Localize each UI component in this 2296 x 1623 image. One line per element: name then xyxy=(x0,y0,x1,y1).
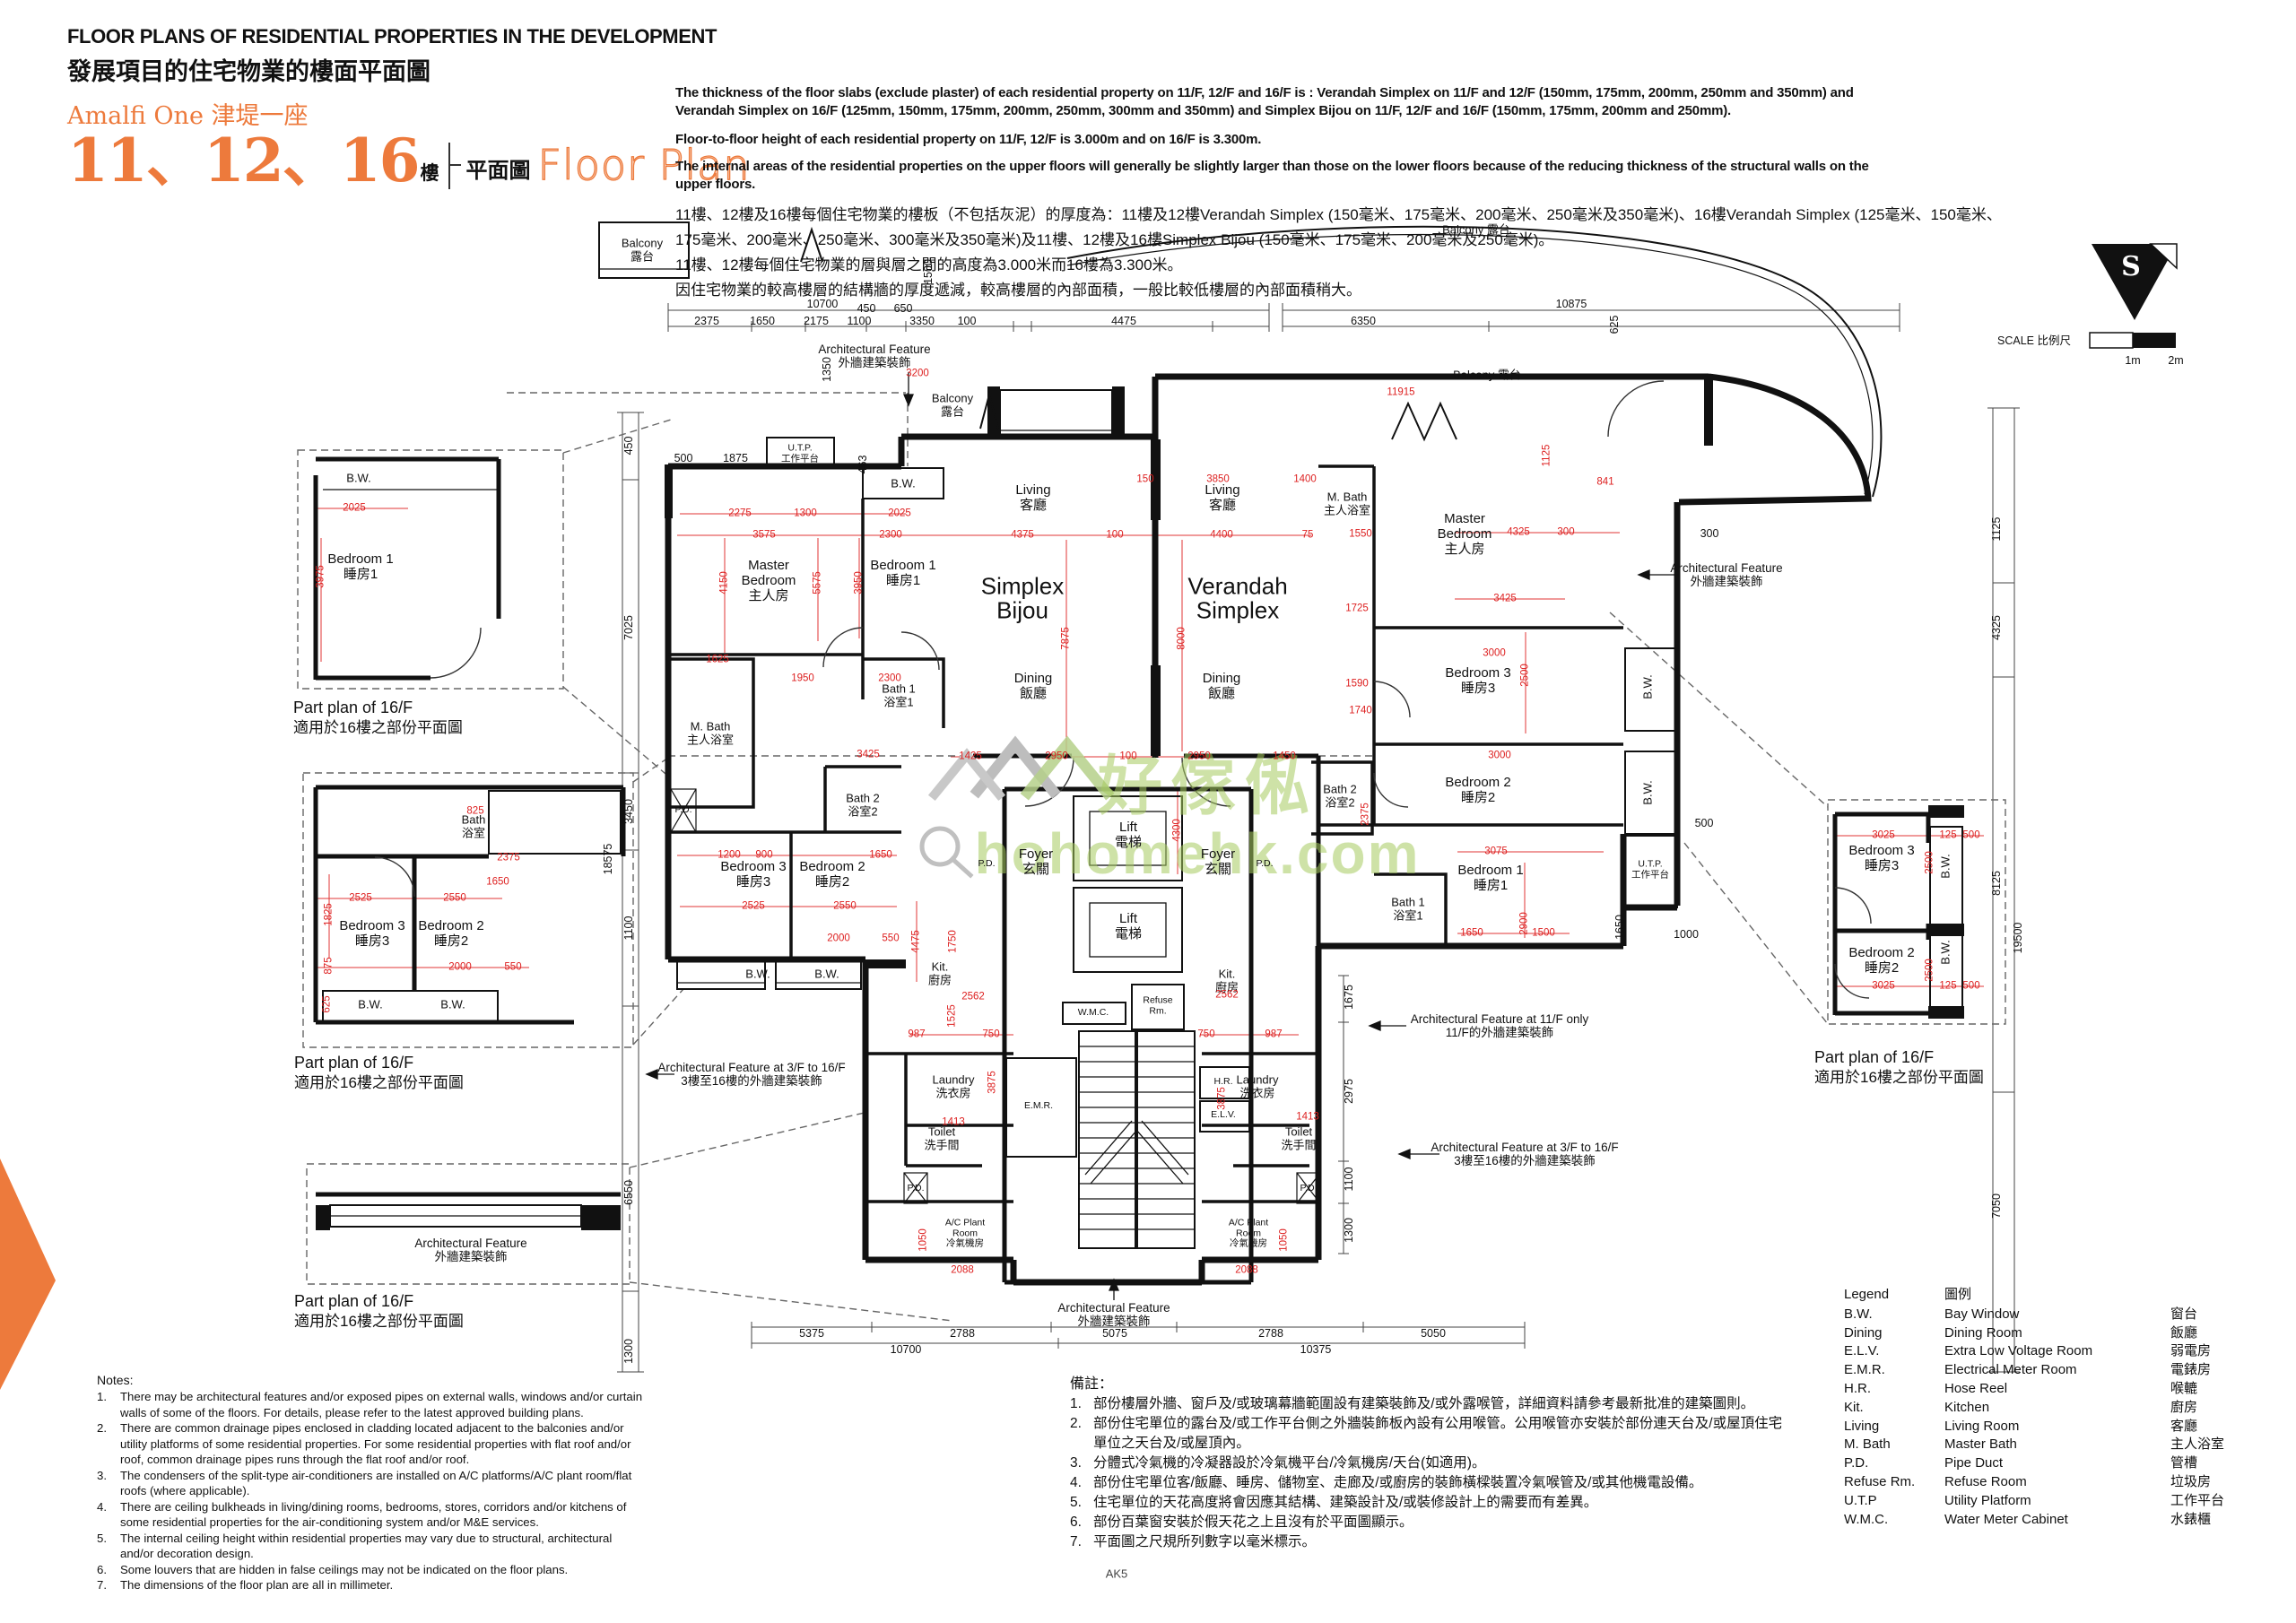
text-line: 洗手間 xyxy=(1281,1139,1316,1152)
note-item: 1.部份樓層外牆、窗戶及/或玻璃幕牆範圍設有建築裝飾及/或外露喉管，詳細資料請參… xyxy=(1070,1394,1787,1414)
legend-abbr: Refuse Rm. xyxy=(1844,1473,1944,1492)
dimension-label: 1413 xyxy=(1296,1112,1319,1124)
text-line: Architectural Feature xyxy=(1057,1301,1170,1315)
room-label: Bedroom 3睡房3 xyxy=(1848,844,1914,874)
dimension-label: 4325 xyxy=(1507,527,1530,539)
dimension-label: 300 xyxy=(1557,527,1574,539)
text-line: Dining xyxy=(1203,672,1241,687)
dimension-label: 1m xyxy=(2125,354,2140,367)
text-line: Bijou xyxy=(981,599,1064,623)
note-text: Some louvers that are hidden in false ce… xyxy=(120,1562,648,1578)
dimension-label: 987 xyxy=(908,1029,925,1041)
text-line: U.T.P. xyxy=(1631,859,1669,870)
text-line: Living xyxy=(1205,483,1239,499)
dimension-label: 3975 xyxy=(316,565,327,588)
room-label: Bath 2浴室2 xyxy=(846,792,880,818)
room-label: Bedroom 1睡房1 xyxy=(1457,864,1523,894)
room-label: RefuseRm. xyxy=(1143,995,1172,1016)
feature-note: Architectural Feature外牆建築裝飾 xyxy=(1670,561,1782,588)
text-line: M. Bath xyxy=(1324,490,1370,504)
legend-name-zh: 主人浴室 xyxy=(2170,1436,2224,1454)
dimension-label: 7875 xyxy=(1061,627,1073,650)
dimension-label: 4475 xyxy=(1111,315,1136,327)
dimension-label: 1300 xyxy=(794,508,817,520)
text-line: Bedroom 3 xyxy=(720,860,786,875)
text-line: 洗手間 xyxy=(924,1139,959,1152)
notes-zh-list: 1.部份樓層外牆、窗戶及/或玻璃幕牆範圍設有建築裝飾及/或外露喉管，詳細資料請參… xyxy=(1070,1394,1787,1552)
text-line: U.T.P. xyxy=(781,443,819,454)
text-line: 外牆建築裝飾 xyxy=(1057,1315,1170,1328)
text-line: Part plan of 16/F xyxy=(294,1292,464,1310)
text-line: 3樓至16樓的外牆建築裝飾 xyxy=(657,1074,845,1088)
room-label: B.W. xyxy=(745,968,770,982)
page-number: AK5 xyxy=(1106,1568,1128,1582)
dimension-label: 5575 xyxy=(813,571,824,595)
dimension-label: 10700 xyxy=(891,1343,922,1356)
text-line: Architectural Feature xyxy=(1670,561,1782,575)
text-line: upper floors. xyxy=(675,176,2002,194)
room-label: Bedroom 2睡房2 xyxy=(799,860,865,890)
text-line: Lift xyxy=(1115,820,1142,836)
room-label: E.L.V. xyxy=(1211,1110,1236,1121)
room-label: B.W. xyxy=(1940,854,1953,878)
legend-item: DiningDining Room飯廳 xyxy=(1844,1324,2224,1343)
dimension-label: 4150 xyxy=(719,571,731,595)
feature-note: Architectural Feature外牆建築裝飾 xyxy=(414,1237,526,1263)
legend-name-en: Electrical Meter Room xyxy=(1944,1361,2170,1380)
dimension-label: 1825 xyxy=(324,903,335,926)
text-line: The internal areas of the residential pr… xyxy=(675,158,2002,176)
note-item: 3.分體式冷氣機的冷凝器設於冷氣機平台/冷氣機房/天台(如適用)。 xyxy=(1070,1454,1787,1473)
legend-header: Legend 圖例 xyxy=(1844,1286,2224,1305)
room-label: Bath浴室 xyxy=(462,813,486,839)
legend-abbr: Dining xyxy=(1844,1324,1944,1343)
text-line: Toilet xyxy=(1281,1125,1316,1139)
dimension-label: 2550 xyxy=(833,901,857,913)
dimension-label: 100 xyxy=(1119,751,1136,763)
feature-note: Architectural Feature at 11/F only11/F的外… xyxy=(1411,1012,1589,1039)
text-line: 3樓至16樓的外牆建築裝飾 xyxy=(1431,1154,1618,1167)
floor-plan-page: 好傢俬 hohomehk.com FLOOR PLANS OF RESIDENT… xyxy=(0,0,2296,1623)
dimension-label: 841 xyxy=(1596,477,1613,489)
dimension-label: 4375 xyxy=(1011,530,1034,542)
text-line: Refuse xyxy=(1143,995,1172,1006)
dimension-label: 2088 xyxy=(1235,1265,1258,1277)
dimension-label: 2m xyxy=(2168,354,2183,367)
dimension-label: 1725 xyxy=(1345,603,1369,615)
dimension-label: 2000 xyxy=(448,962,472,974)
dimension-label: 1650 xyxy=(869,850,892,862)
room-label: Bath 1浴室1 xyxy=(882,682,916,708)
dimension-label: 3025 xyxy=(1872,830,1895,842)
dimension-label: 3850 xyxy=(1206,474,1230,486)
room-label: Dining飯廳 xyxy=(1014,672,1053,702)
dimension-label: 2025 xyxy=(343,503,366,515)
dimension-label: 3000 xyxy=(1488,751,1511,762)
room-label: Foyer玄關 xyxy=(1201,847,1235,878)
room-label: U.T.P.工作平台 xyxy=(1631,859,1669,880)
text-line: Master xyxy=(742,559,796,574)
unit-name: VerandahSimplex xyxy=(1187,575,1287,624)
dimension-label: 500 xyxy=(674,452,693,464)
text-line: Architectural Feature at 3/F to 16/F xyxy=(657,1061,845,1074)
legend-name-en: Dining Room xyxy=(1944,1324,2170,1343)
text-line: Laundry xyxy=(933,1073,975,1087)
room-label: U.T.P.工作平台 xyxy=(781,443,819,464)
legend-name-zh: 水錶櫃 xyxy=(2170,1511,2224,1530)
text-line: 浴室 xyxy=(462,827,486,840)
text-line: Foyer xyxy=(1019,847,1053,863)
legend-name-en: Hose Reel xyxy=(1944,1380,2170,1399)
dimension-label: 4400 xyxy=(1210,530,1233,542)
room-label: Bedroom 3睡房3 xyxy=(339,919,404,950)
dimension-label: 19500 xyxy=(2012,923,2024,954)
text-line: 浴室1 xyxy=(882,696,916,709)
room-label: Bedroom 1睡房1 xyxy=(327,552,393,583)
note-item: 6.Some louvers that are hidden in false … xyxy=(97,1562,648,1578)
text-line: 適用於16樓之部份平面圖 xyxy=(294,1313,464,1330)
dimension-label: 10700 xyxy=(807,298,839,310)
scale-bar xyxy=(2090,333,2176,348)
legend-name-en: Living Room xyxy=(1944,1418,2170,1436)
note-item: 4.There are ceiling bulkheads in living/… xyxy=(97,1499,648,1531)
text-line: 主人房 xyxy=(1438,542,1492,557)
room-label: Laundry洗衣房 xyxy=(933,1073,975,1099)
room-label: Kit.廚房 xyxy=(928,960,952,986)
dimension-label: 1875 xyxy=(723,452,748,464)
dimension-label: 10875 xyxy=(1556,298,1587,310)
dimension-label: 4475 xyxy=(911,930,923,953)
note-text: The dimensions of the floor plan are all… xyxy=(120,1577,648,1593)
dashed-boundaries xyxy=(298,393,2005,1321)
note-item: 5.The internal ceiling height within res… xyxy=(97,1531,648,1562)
dimension-label: 1675 xyxy=(1343,985,1355,1010)
note-text: 部份百葉窗安裝於假天花之上且沒有於平面圖顯示。 xyxy=(1093,1513,1787,1532)
note-item: 7.平面圖之尺規所列數字以毫米標示。 xyxy=(1070,1532,1787,1552)
dimension-label: 1100 xyxy=(622,916,635,941)
dimension-label: 2088 xyxy=(951,1265,974,1277)
text-line: Bedroom 3 xyxy=(1848,844,1914,859)
room-label: Bedroom 2睡房2 xyxy=(1848,946,1914,976)
note-text: 部份樓層外牆、窗戶及/或玻璃幕牆範圍設有建築裝飾及/或外露喉管，詳細資料請參考最… xyxy=(1093,1394,1787,1414)
dimension-label: 500 xyxy=(1962,981,1979,993)
note-text: 平面圖之尺規所列數字以毫米標示。 xyxy=(1093,1532,1787,1552)
dimension-label: 750 xyxy=(1197,1029,1214,1041)
text-line: Part plan of 16/F xyxy=(1814,1048,1984,1066)
text-line: 冷氣機房 xyxy=(945,1239,985,1250)
legend-item: M. BathMaster Bath主人浴室 xyxy=(1844,1436,2224,1454)
dimension-label: 1050 xyxy=(1279,1228,1291,1252)
room-label: B.W. xyxy=(814,968,839,982)
note-number: 6. xyxy=(97,1562,120,1578)
dimension-label: 2500 xyxy=(1925,851,1936,874)
text-line: 客廳 xyxy=(1205,499,1239,514)
room-label: Balcony露台 xyxy=(622,237,663,263)
legend-name-zh: 客廳 xyxy=(2170,1418,2224,1436)
text-line: 工作平台 xyxy=(1631,870,1669,881)
text-line: Verandah xyxy=(1187,575,1287,599)
dimension-label: 125 xyxy=(1939,981,1956,993)
dimension-label: 3950 xyxy=(854,571,865,595)
legend-name-en: Kitchen xyxy=(1944,1399,2170,1418)
legend-name-en: Utility Platform xyxy=(1944,1492,2170,1511)
note-number: 2. xyxy=(97,1420,120,1468)
text-line: Bedroom 2 xyxy=(1848,946,1914,961)
dimension-label: 2375 xyxy=(694,315,719,327)
dimension-label: 3425 xyxy=(857,750,880,761)
floor-suffix: 樓 xyxy=(421,159,439,186)
dimension-label: 1590 xyxy=(1345,679,1369,690)
text-line: Architectural Feature at 3/F to 16/F xyxy=(1431,1141,1618,1154)
walls xyxy=(316,222,1962,1282)
description-zh: 11樓、12樓及16樓每個住宅物業的樓板（不包括灰泥）的厚度為：11樓及12樓V… xyxy=(675,203,2002,303)
room-label: Bath 1浴室1 xyxy=(1391,896,1425,922)
dimension-label: 500 xyxy=(1695,817,1714,829)
dimension-label: 1500 xyxy=(1532,928,1555,940)
room-label: Laundry洗衣房 xyxy=(1237,1073,1279,1099)
note-number: 7. xyxy=(97,1577,120,1593)
dimension-label: 1950 xyxy=(791,673,814,685)
dimension-label: 8000 xyxy=(1177,627,1188,650)
note-text: The condensers of the split-type air-con… xyxy=(120,1468,648,1499)
note-text: 分體式冷氣機的冷凝器設於冷氣機平台/冷氣機房/天台(如適用)。 xyxy=(1093,1454,1787,1473)
legend-name-en: Extra Low Voltage Room xyxy=(1944,1342,2170,1361)
legend-abbr: U.T.P xyxy=(1844,1492,1944,1511)
room-label: MasterBedroom主人房 xyxy=(742,559,796,603)
dimension-label: 2300 xyxy=(878,673,901,685)
text-line: 睡房3 xyxy=(720,875,786,890)
text-line: Bedroom 1 xyxy=(1457,864,1523,879)
room-label: Foyer玄關 xyxy=(1019,847,1053,878)
text-line: 客廳 xyxy=(1015,499,1050,514)
dimension-label: 2525 xyxy=(742,901,765,913)
text-line: Foyer xyxy=(1201,847,1235,863)
note-text: There may be architectural features and/… xyxy=(120,1389,648,1420)
dimension-label: 2950 xyxy=(1045,751,1068,763)
dimension-label: 450 xyxy=(857,302,876,315)
room-label: Balcony 露台 xyxy=(1442,224,1510,238)
floor-designation: 11、12、16 樓 平面圖 Floor Plan xyxy=(67,133,750,189)
legend-name-zh: 管槽 xyxy=(2170,1454,2224,1473)
dimension-label: 4300 xyxy=(1172,819,1184,842)
text-line: 175毫米、200毫米、250毫米、300毫米及350毫米)及11樓、12樓及1… xyxy=(675,228,2002,253)
dimension-label: 5375 xyxy=(799,1327,824,1340)
legend-abbr: H.R. xyxy=(1844,1380,1944,1399)
watermark-house-icon xyxy=(922,744,1107,875)
dimension-label: 2562 xyxy=(961,992,985,1003)
dimension-label: 1050 xyxy=(918,1228,930,1252)
legend-name-en: Bay Window xyxy=(1944,1306,2170,1324)
text-line: Balcony xyxy=(622,237,663,250)
room-label: Bedroom 3睡房3 xyxy=(720,860,786,890)
room-label: P.D. xyxy=(674,805,691,816)
dimension-label: 1650 xyxy=(1460,928,1483,940)
text-line: 電梯 xyxy=(1115,927,1142,942)
room-label: Bedroom 2睡房2 xyxy=(418,919,483,950)
dimension-label: 1650 xyxy=(1613,915,1626,940)
dimension-label: 100 xyxy=(1106,530,1123,542)
dimension-label: 1200 xyxy=(717,850,741,862)
dimension-label: 3875 xyxy=(1217,1087,1229,1110)
text-line: 洗衣房 xyxy=(933,1087,975,1100)
dimension-label: 5075 xyxy=(1102,1327,1127,1340)
unit-name: SimplexBijou xyxy=(981,575,1064,624)
notes-list: 1.There may be architectural features an… xyxy=(97,1389,648,1593)
legend-item: LivingLiving Room客廳 xyxy=(1844,1418,2224,1436)
legend-item: B.W.Bay Window窗台 xyxy=(1844,1306,2224,1324)
notes-title: Notes: xyxy=(97,1373,648,1387)
dimension-label: 7050 xyxy=(1990,1193,2003,1219)
legend-title-zh: 圖例 xyxy=(1944,1286,2170,1305)
dimension-label: 3000 xyxy=(1483,648,1506,660)
text-line: Bedroom xyxy=(742,574,796,589)
legend-name-zh: 電錶房 xyxy=(2170,1361,2224,1380)
note-item: 2.There are common drainage pipes enclos… xyxy=(97,1420,648,1468)
legend-name-en: Pipe Duct xyxy=(1944,1454,2170,1473)
legend-abbr: W.M.C. xyxy=(1844,1511,1944,1530)
text-line: Rm. xyxy=(1143,1006,1172,1017)
dimension-label: 2275 xyxy=(728,508,752,520)
dimension-label: 1125 xyxy=(1542,445,1553,467)
feature-note: Architectural Feature at 3/F to 16/F3樓至1… xyxy=(1431,1141,1618,1167)
note-item: 1.There may be architectural features an… xyxy=(97,1389,648,1420)
dimension-label: 1500 xyxy=(922,259,935,284)
text-line: Floor-to-floor height of each residentia… xyxy=(675,131,2002,149)
text-line: 冷氣機房 xyxy=(1229,1239,1268,1250)
dimension-label: SCALE 比例尺 xyxy=(1997,334,2071,347)
legend-name-zh: 弱電房 xyxy=(2170,1342,2224,1361)
legend-abbr: M. Bath xyxy=(1844,1436,1944,1454)
text-line: 因住宅物業的較高樓層的結構牆的厚度遞減，較高樓層的內部面積，一般比較低樓層的內部… xyxy=(675,278,2002,303)
dimension-label: 450 xyxy=(622,437,635,456)
room-label: E.M.R. xyxy=(1024,1101,1053,1112)
room-label: H.R. xyxy=(1214,1077,1233,1088)
dimension-label: 3025 xyxy=(1872,981,1895,993)
dimension-label: 463 xyxy=(857,456,869,474)
dimension-label: 18575 xyxy=(602,844,614,875)
text-line: Architectural Feature xyxy=(414,1237,526,1250)
description-block: The thickness of the floor slabs (exclud… xyxy=(675,84,2002,303)
text-line: Lift xyxy=(1115,912,1142,927)
dimension-label: 3575 xyxy=(752,530,776,542)
text-line: 睡房1 xyxy=(870,574,935,589)
text-line: Part plan of 16/F xyxy=(293,699,463,716)
notes: Notes: 1.There may be architectural feat… xyxy=(97,1373,648,1593)
legend-title-en: Legend xyxy=(1844,1286,1944,1305)
text-line: Dining xyxy=(1014,672,1053,687)
dimension-label: 500 xyxy=(1962,830,1979,842)
text-line: Bedroom 1 xyxy=(327,552,393,568)
legend-name-zh: 垃圾房 xyxy=(2170,1473,2224,1492)
dimension-label: 875 xyxy=(324,957,335,974)
dimension-label: 1300 xyxy=(1343,1218,1355,1243)
dimension-label: 11915 xyxy=(1387,387,1414,399)
text-line: 適用於16樓之部份平面圖 xyxy=(1814,1069,1984,1086)
dimension-label: 1650 xyxy=(486,877,509,889)
dimension-label: 2000 xyxy=(827,933,850,945)
text-line: Balcony xyxy=(932,392,973,405)
notes-zh-title: 備註： xyxy=(1070,1371,1787,1393)
part-plan-title: Part plan of 16/F適用於16樓之部份平面圖 xyxy=(293,699,463,736)
note-text: 住宅單位的天花高度將會因應其結構、建築設計及/或裝修設計上的需要而有差異。 xyxy=(1093,1493,1787,1513)
dimension-label: 2562 xyxy=(1215,990,1239,1002)
dimension-label: 2788 xyxy=(950,1327,975,1340)
room-label: P.D. xyxy=(1256,859,1273,870)
dimension-label: 1400 xyxy=(1293,474,1317,486)
room-label: M. Bath主人浴室 xyxy=(1324,490,1370,516)
legend-abbr: P.D. xyxy=(1844,1454,1944,1473)
legend-name-zh: 工作平台 xyxy=(2170,1492,2224,1511)
text-line: The thickness of the floor slabs (exclud… xyxy=(675,84,2002,102)
text-line: 主人房 xyxy=(742,588,796,603)
notes-zh: 備註： 1.部份樓層外牆、窗戶及/或玻璃幕牆範圍設有建築裝飾及/或外露喉管，詳細… xyxy=(1070,1371,1787,1552)
text-line: 工作平台 xyxy=(781,454,819,464)
text-line: 玄關 xyxy=(1019,863,1053,878)
room-label: MasterBedroom主人房 xyxy=(1438,512,1492,557)
room-label: M. Bath主人浴室 xyxy=(687,720,734,746)
legend-name-zh: 飯廳 xyxy=(2170,1324,2224,1343)
dimension-label: 1740 xyxy=(1349,706,1372,717)
legend-abbr: Living xyxy=(1844,1418,1944,1436)
note-number: 5. xyxy=(1070,1493,1093,1513)
dimension-label: 6550 xyxy=(622,1180,635,1205)
dimension-label: 3200 xyxy=(906,369,929,380)
room-label: Living客廳 xyxy=(1015,483,1050,514)
note-text: The internal ceiling height within resid… xyxy=(120,1531,648,1562)
text-line: 飯廳 xyxy=(1203,687,1241,702)
legend: Legend 圖例 B.W.Bay Window窗台DiningDining R… xyxy=(1844,1286,2224,1529)
text-line: Laundry xyxy=(1237,1073,1279,1087)
room-label: Bedroom 2睡房2 xyxy=(1445,776,1510,806)
page-title: FLOOR PLANS OF RESIDENTIAL PROPERTIES IN… xyxy=(67,25,750,48)
dimension-label: 650 xyxy=(894,302,913,315)
dimension-label: 1300 xyxy=(622,1339,635,1364)
room-label: B.W. xyxy=(346,473,370,486)
dimension-label: 2975 xyxy=(1343,1079,1355,1104)
dimension-label: 1125 xyxy=(1990,517,2003,542)
feature-note: Architectural Feature外牆建築裝飾 xyxy=(1057,1301,1170,1328)
text-line: 適用於16樓之部份平面圖 xyxy=(293,719,463,736)
dimension-label: 10375 xyxy=(1300,1343,1332,1356)
note-number: 4. xyxy=(97,1499,120,1531)
text-line: Bath 2 xyxy=(1323,783,1357,796)
header: FLOOR PLANS OF RESIDENTIAL PROPERTIES IN… xyxy=(67,25,750,189)
text-line: Part plan of 16/F xyxy=(294,1054,464,1072)
text-line: Architectural Feature xyxy=(818,343,930,356)
orange-corner-accent xyxy=(0,1159,56,1390)
note-text: 部份住宅單位的露台及/或工作平台側之外牆裝飾板內設有公用喉管。公用喉管亦安裝於部… xyxy=(1093,1414,1787,1454)
text-line: 11樓、12樓每個住宅物業的層與層之間的高度為3.000米而16樓為3.300米… xyxy=(675,253,2002,278)
dimension-label: 625 xyxy=(1608,316,1621,334)
room-label: Lift電梯 xyxy=(1115,912,1142,942)
legend-item: Kit.Kitchen廚房 xyxy=(1844,1399,2224,1418)
dimension-label: 2175 xyxy=(804,315,829,327)
dimension-label: 3350 xyxy=(909,315,935,327)
dimension-label: 2550 xyxy=(443,893,466,905)
text-line: Bath 1 xyxy=(882,682,916,696)
text-line: Bedroom 3 xyxy=(339,919,404,934)
text-line: Kit. xyxy=(928,960,952,974)
text-line: 洗衣房 xyxy=(1237,1087,1279,1100)
note-number: 7. xyxy=(1070,1532,1093,1552)
text-line: 廚房 xyxy=(928,974,952,987)
text-line: 睡房3 xyxy=(1445,681,1510,697)
dimension-label: 1550 xyxy=(1349,529,1372,541)
text-line: Verandah Simplex on 16/F (125mm, 150mm, … xyxy=(675,102,2002,120)
dimension-label: 2375 xyxy=(497,853,520,864)
room-label: W.M.C. xyxy=(1078,1008,1109,1019)
legend-spacer xyxy=(2170,1286,2224,1305)
